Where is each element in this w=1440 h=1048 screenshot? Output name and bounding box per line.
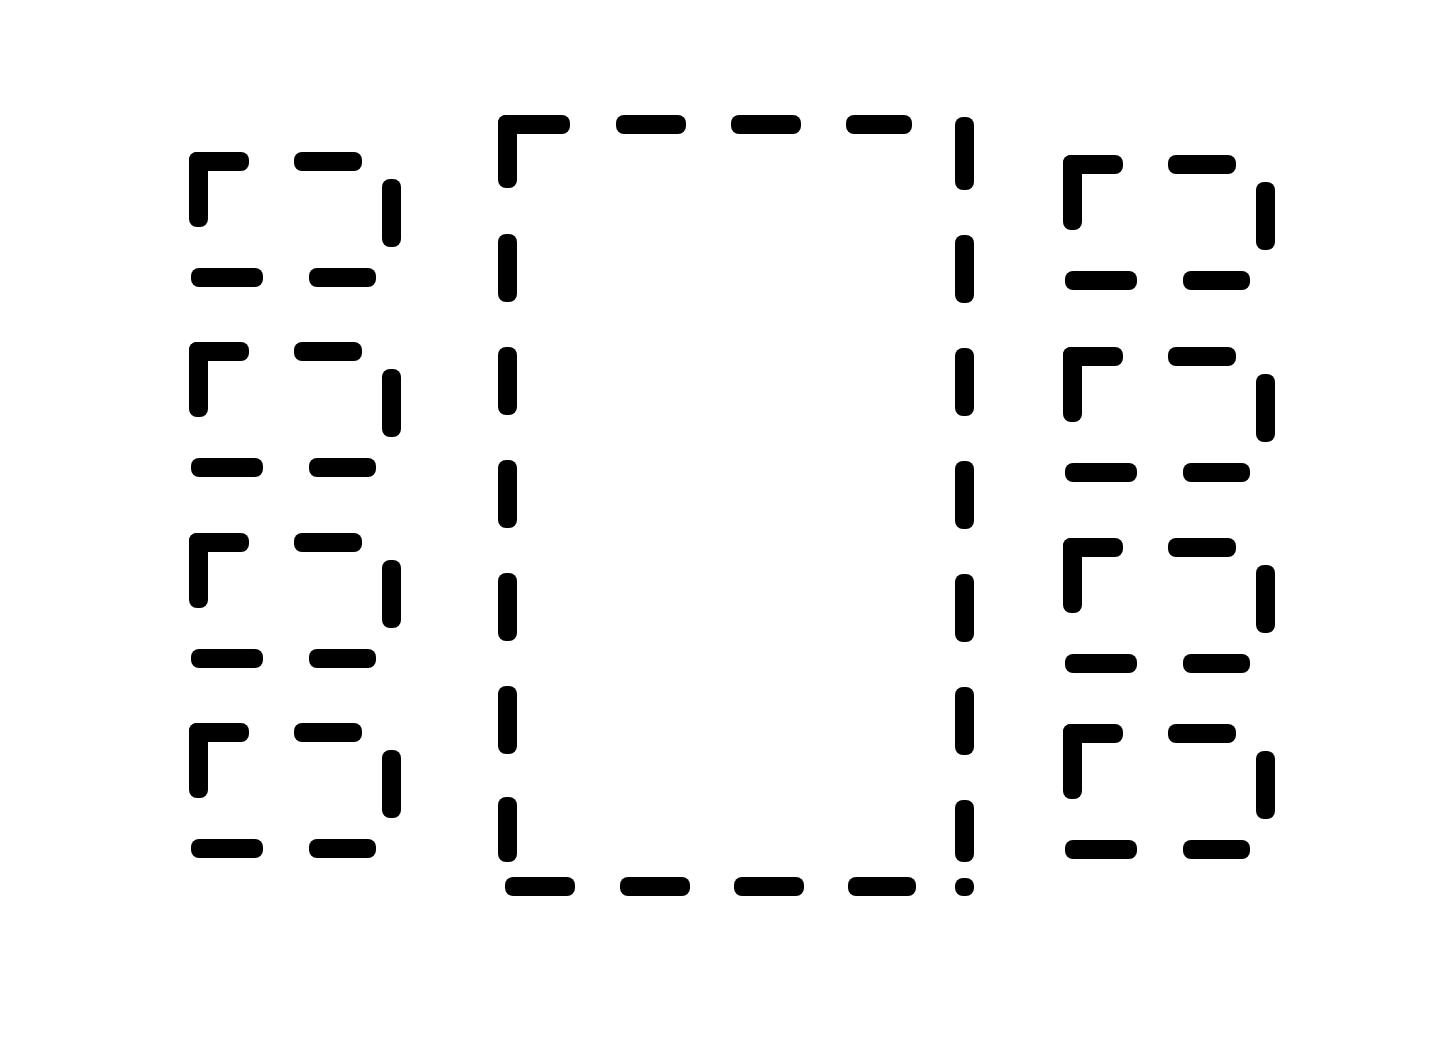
dashed-box-left-box-3 (189, 533, 401, 668)
right-box-2-corner-vertical (1063, 347, 1082, 422)
right-box-4-bottom-dash-2 (1183, 840, 1250, 859)
left-box-1-right-dash (382, 179, 401, 247)
left-box-4-bottom-dash-2 (309, 839, 376, 858)
center-rect-top-dash-3 (846, 115, 912, 134)
left-box-3-right-dash (382, 560, 401, 628)
right-box-2-bottom-dash-2 (1183, 463, 1250, 482)
right-box-1-top-dash (1168, 155, 1236, 174)
right-box-1-right-dash (1256, 182, 1275, 250)
center-rect-bottom-dash-3 (734, 877, 804, 896)
right-box-2-bottom-dash-1 (1065, 463, 1137, 482)
center-rect-right-dash-7 (955, 800, 974, 862)
right-box-3-bottom-dash-2 (1183, 654, 1250, 673)
left-box-4-corner-vertical (189, 723, 208, 798)
right-box-2-right-dash (1256, 374, 1275, 442)
dashed-box-right-box-3 (1063, 538, 1275, 673)
left-box-2-right-dash (382, 369, 401, 437)
right-box-1-bottom-dash-1 (1065, 271, 1137, 290)
dashed-box-right-box-1 (1063, 155, 1275, 290)
dashed-box-left-box-4 (189, 723, 401, 858)
left-box-1-bottom-dash-2 (309, 268, 376, 287)
left-box-3-corner-vertical (189, 533, 208, 608)
right-box-4-right-dash (1256, 751, 1275, 819)
center-rect-bottom-dash-1 (505, 877, 575, 896)
center-rect-top-corner-vertical (498, 115, 517, 188)
right-box-4-top-dash (1168, 724, 1236, 743)
center-rect-left-dash-1 (498, 234, 517, 302)
center-rect-left-dash-3 (498, 460, 517, 528)
dashed-box-right-box-2 (1063, 347, 1275, 482)
left-box-2-bottom-dash-2 (309, 458, 376, 477)
right-box-1-corner-vertical (1063, 155, 1082, 230)
center-rect-left-dash-4 (498, 573, 517, 641)
left-box-4-bottom-dash-1 (191, 839, 263, 858)
right-box-3-right-dash (1256, 565, 1275, 633)
left-box-3-bottom-dash-2 (309, 649, 376, 668)
right-box-4-bottom-dash-1 (1065, 840, 1137, 859)
figure-canvas (0, 0, 1440, 1048)
left-box-1-corner-vertical (189, 152, 208, 227)
center-rect-right-dash-6 (955, 687, 974, 755)
left-box-3-bottom-dash-1 (191, 649, 263, 668)
center-rect-right-dash-3 (955, 348, 974, 416)
right-box-3-corner-vertical (1063, 538, 1082, 613)
center-rect-right-dash-1 (955, 117, 974, 190)
left-box-1-bottom-dash-1 (191, 268, 263, 287)
left-box-4-right-dash (382, 750, 401, 818)
dashed-box-right-box-4 (1063, 724, 1275, 859)
dashed-box-left-box-2 (189, 342, 401, 477)
left-box-1-top-dash (294, 152, 362, 171)
center-rect-left-dash-2 (498, 347, 517, 415)
center-rect-right-dash-4 (955, 461, 974, 529)
left-box-3-top-dash (294, 533, 362, 552)
center-rect-top-dash-1 (616, 115, 686, 134)
left-box-4-top-dash (294, 723, 362, 742)
left-box-2-top-dash (294, 342, 362, 361)
dashed-box-left-box-1 (189, 152, 401, 287)
center-rect-top-dash-2 (731, 115, 801, 134)
center-rect-bottom-right-corner-stub (955, 878, 974, 896)
center-rect-bottom-dash-4 (848, 877, 916, 896)
center-rect-bottom-dash-2 (620, 877, 690, 896)
center-rect-left-dash-5 (498, 686, 517, 754)
center-rect-right-dash-5 (955, 574, 974, 642)
right-box-2-top-dash (1168, 347, 1236, 366)
left-box-2-corner-vertical (189, 342, 208, 417)
center-rect-left-dash-6 (498, 797, 517, 862)
right-box-3-top-dash (1168, 538, 1236, 557)
left-box-2-bottom-dash-1 (191, 458, 263, 477)
right-box-4-corner-vertical (1063, 724, 1082, 799)
center-rect-right-dash-2 (955, 235, 974, 303)
right-box-3-bottom-dash-1 (1065, 654, 1137, 673)
right-box-1-bottom-dash-2 (1183, 271, 1250, 290)
